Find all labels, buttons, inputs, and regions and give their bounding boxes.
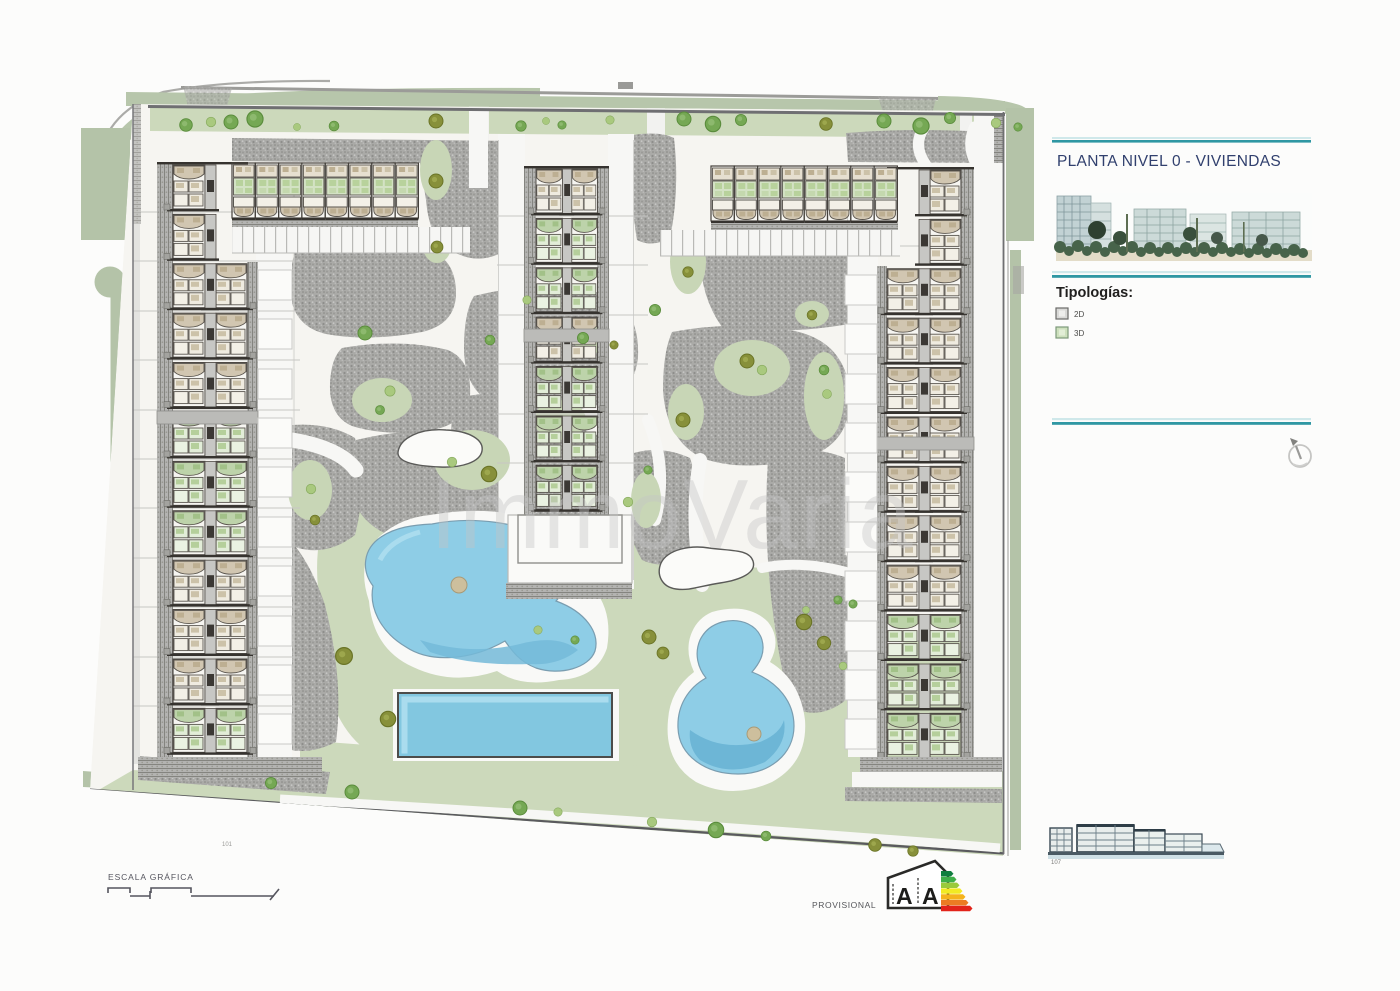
svg-text:3D: 3D (1074, 329, 1084, 338)
svg-text:PLANTA NIVEL 0 - VIVIENDAS: PLANTA NIVEL 0 - VIVIENDAS (1057, 153, 1281, 170)
svg-text:101: 101 (222, 842, 233, 848)
svg-text:107: 107 (1051, 860, 1062, 866)
svg-text:A: A (896, 883, 913, 909)
svg-text:A: A (922, 883, 939, 909)
svg-text:ImmoVaria: ImmoVaria (430, 459, 915, 569)
svg-text:Tipologías:: Tipologías: (1056, 285, 1133, 301)
svg-text:ESCALA GRÁFICA: ESCALA GRÁFICA (108, 872, 194, 882)
svg-text:PROVISIONAL: PROVISIONAL (812, 900, 876, 910)
svg-text:2D: 2D (1074, 310, 1084, 319)
